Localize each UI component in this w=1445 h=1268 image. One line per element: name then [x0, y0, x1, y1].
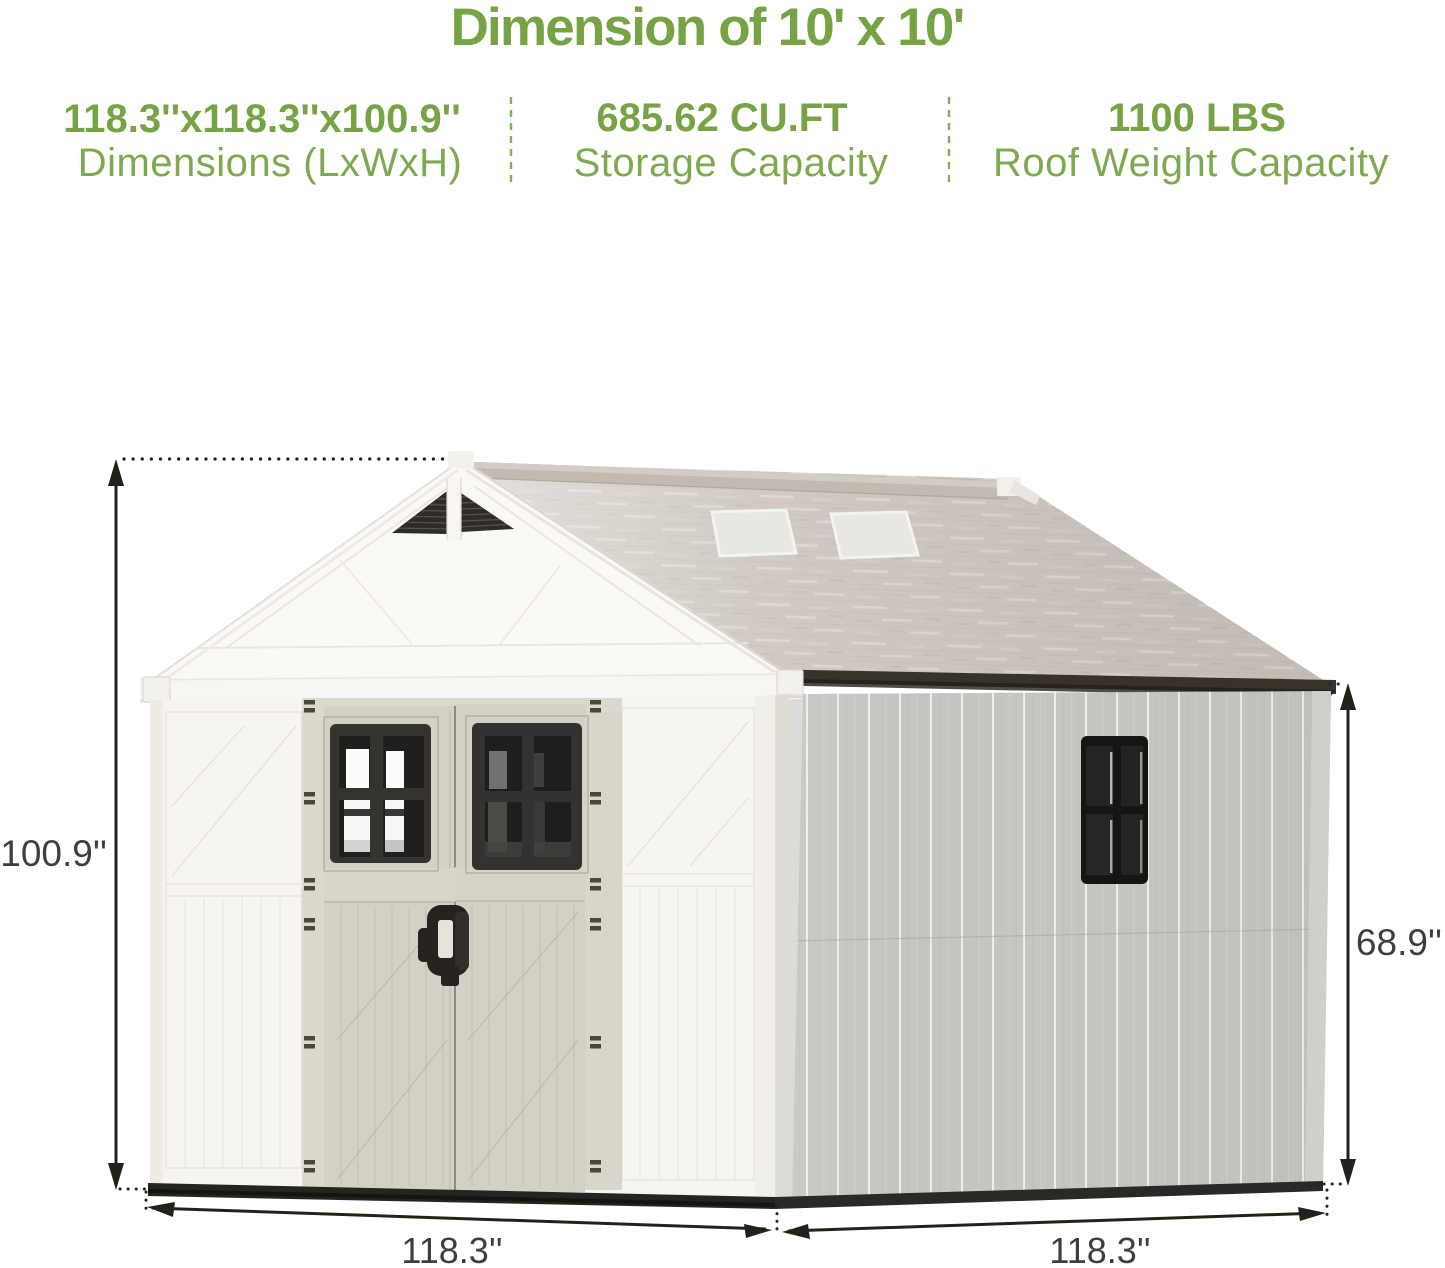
svg-text:Roof Weight Capacity: Roof Weight Capacity: [993, 141, 1389, 185]
svg-text:118.3''x118.3''x100.9'': 118.3''x118.3''x100.9'': [63, 97, 460, 141]
svg-text:118.3'': 118.3'': [1049, 1230, 1150, 1268]
svg-text:68.9'': 68.9'': [1356, 922, 1442, 963]
svg-text:118.3'': 118.3'': [401, 1230, 502, 1268]
svg-text:100.9'': 100.9'': [0, 833, 107, 874]
svg-text:Dimensions (LxWxH): Dimensions (LxWxH): [78, 141, 463, 185]
svg-text:Storage Capacity: Storage Capacity: [574, 141, 889, 185]
svg-text:Dimension of 10' x 10': Dimension of 10' x 10': [451, 0, 964, 57]
svg-text:1100 LBS: 1100 LBS: [1108, 96, 1286, 140]
svg-text:685.62 CU.FT: 685.62 CU.FT: [596, 96, 847, 140]
